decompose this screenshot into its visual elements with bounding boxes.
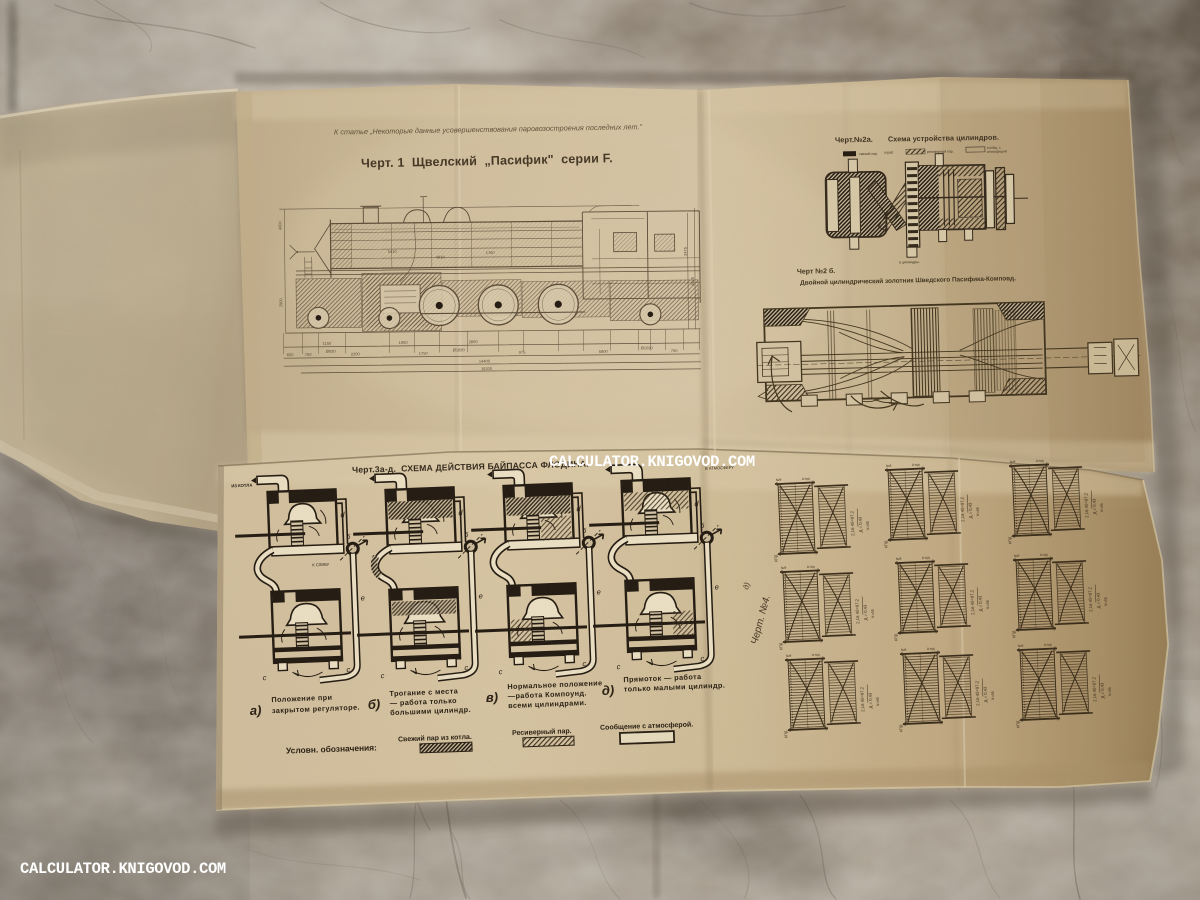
svg-text:CALCULATOR.KNIGOVOD.COM: CALCULATOR.KNIGOVOD.COM — [20, 860, 226, 878]
svg-text:CALCULATOR.KNIGOVOD.COM: CALCULATOR.KNIGOVOD.COM — [549, 453, 755, 471]
